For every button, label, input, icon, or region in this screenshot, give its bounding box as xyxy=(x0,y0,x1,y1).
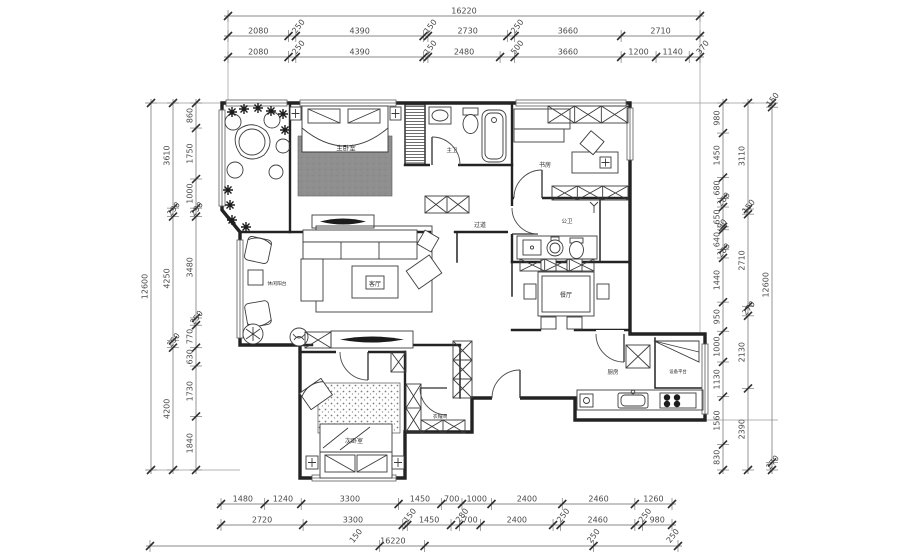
window xyxy=(219,110,225,206)
armchair-icon xyxy=(406,255,442,289)
room-label-master-bedroom: 主卧室 xyxy=(336,143,356,152)
svg-text:2710: 2710 xyxy=(650,27,670,36)
svg-text:2400: 2400 xyxy=(507,516,527,525)
svg-text:3300: 3300 xyxy=(340,495,360,504)
svg-text:16220: 16220 xyxy=(451,7,476,16)
svg-text:1450: 1450 xyxy=(419,516,439,525)
svg-text:3610: 3610 xyxy=(163,145,172,165)
plant-icon xyxy=(227,215,237,225)
plant-icon xyxy=(227,107,237,117)
side-table-icon xyxy=(248,270,263,285)
svg-text:680: 680 xyxy=(713,180,722,195)
svg-text:860: 860 xyxy=(186,108,195,123)
svg-text:2480: 2480 xyxy=(454,48,474,57)
svg-text:980: 980 xyxy=(650,516,665,525)
door-arc xyxy=(420,388,447,415)
kitchen-sink-icon xyxy=(618,390,648,408)
svg-text:1260: 1260 xyxy=(643,495,663,504)
svg-text:1480: 1480 xyxy=(233,495,253,504)
plant-icon xyxy=(600,157,611,168)
x-hatch-box xyxy=(425,196,469,213)
svg-text:2390: 2390 xyxy=(738,419,747,439)
svg-text:1730: 1730 xyxy=(186,381,195,401)
room-label-public-bath: 公卫 xyxy=(561,218,573,225)
master-bath: 主卫 xyxy=(429,107,506,162)
toilet-icon xyxy=(570,238,584,259)
floorplan-page: 主卧室 主卫 书房 过道 xyxy=(0,0,920,560)
tv-cabinet-icon xyxy=(331,331,413,348)
svg-text:700: 700 xyxy=(462,516,477,525)
room-label-study: 书房 xyxy=(539,161,551,169)
window xyxy=(516,100,626,106)
nightstand-icon xyxy=(392,456,404,469)
dimension-chain-left_inner: 86017501000290348025077063017301840 xyxy=(186,99,205,474)
floor-plan-canvas: 主卧室 主卫 书房 过道 xyxy=(0,0,920,560)
chair-icon xyxy=(541,317,556,329)
chair-icon xyxy=(524,284,536,299)
balcony-chair-icon xyxy=(244,300,272,328)
square-sink-icon xyxy=(523,240,541,255)
svg-text:150: 150 xyxy=(348,527,365,545)
room-label-living: 客厅 xyxy=(369,280,381,288)
svg-text:4390: 4390 xyxy=(349,48,369,57)
svg-text:16220: 16220 xyxy=(380,537,405,546)
plant-icon xyxy=(241,222,251,232)
room-label-leisure-balcony: 休闲阳台 xyxy=(267,280,286,287)
svg-text:2710: 2710 xyxy=(738,250,747,270)
room-label-kitchen: 厨房 xyxy=(607,368,619,376)
svg-text:1130: 1130 xyxy=(713,369,722,389)
dimension-chain-right_outer: 15012600270 xyxy=(762,91,781,474)
svg-text:640: 640 xyxy=(713,232,722,247)
round-table-icon xyxy=(239,129,265,155)
plant-icon xyxy=(253,103,263,113)
plant-icon xyxy=(278,109,288,119)
stove-icon xyxy=(660,393,696,408)
wardrobe-icon xyxy=(405,105,425,163)
svg-text:1140: 1140 xyxy=(662,48,682,57)
svg-text:1200: 1200 xyxy=(628,48,648,57)
plant-icon xyxy=(223,185,233,195)
dimension-chain-bottom_row3: 15016220250250 xyxy=(146,527,682,552)
door-arc xyxy=(514,170,542,198)
svg-text:12600: 12600 xyxy=(141,274,150,299)
dimension-chain-bottom_row2: 27203300150145028070024002502460250980 xyxy=(217,507,676,531)
svg-text:1450: 1450 xyxy=(713,145,722,165)
plant-icon xyxy=(239,104,249,114)
svg-text:2080: 2080 xyxy=(248,48,268,57)
door-arc xyxy=(492,370,520,398)
x-hatch-box xyxy=(626,345,650,368)
pouf-chair-icon xyxy=(264,112,280,128)
corner-shelf-icon xyxy=(654,341,699,362)
svg-text:3480: 3480 xyxy=(186,257,195,277)
stool-icon xyxy=(417,230,439,252)
leisure-balcony: 休闲阳台 xyxy=(243,236,287,344)
window xyxy=(300,100,396,106)
svg-text:770: 770 xyxy=(186,329,195,344)
second-bedroom: 次卧室 xyxy=(300,378,404,478)
room-label-second-bedroom: 次卧室 xyxy=(345,437,363,445)
svg-text:2130: 2130 xyxy=(738,342,747,362)
svg-text:1560: 1560 xyxy=(713,410,722,430)
kitchen: 厨房 设备平台 xyxy=(577,341,703,410)
pouf-chair-icon xyxy=(225,114,241,130)
svg-text:2460: 2460 xyxy=(588,516,608,525)
svg-text:1750: 1750 xyxy=(186,143,195,163)
appliance-icon xyxy=(580,394,593,407)
windows xyxy=(219,100,708,481)
svg-text:4200: 4200 xyxy=(163,399,172,419)
pouf-chair-icon xyxy=(227,162,243,178)
dimension-chain-left_total: 12600 xyxy=(141,99,158,474)
public-bath: 公卫 xyxy=(517,202,598,259)
study: 书房 xyxy=(514,109,618,173)
nightstand-icon xyxy=(390,107,401,120)
cabinet-icon xyxy=(514,109,570,129)
svg-text:250: 250 xyxy=(665,527,682,545)
dimension-chain-right_inner: 9801450680280650906402801440950100011301… xyxy=(713,99,732,474)
x-hatch-box xyxy=(406,384,421,432)
room-label-dining: 餐厅 xyxy=(560,291,572,299)
svg-text:2400: 2400 xyxy=(517,495,537,504)
svg-text:830: 830 xyxy=(713,450,722,465)
balcony-chair-icon xyxy=(244,236,272,264)
plant-pot-icon xyxy=(243,324,263,344)
svg-text:2080: 2080 xyxy=(248,27,268,36)
room-label-equipment-platform: 设备平台 xyxy=(669,368,687,375)
svg-text:3300: 3300 xyxy=(343,516,363,525)
svg-text:4390: 4390 xyxy=(349,27,369,36)
chair-icon xyxy=(597,284,609,299)
svg-text:1000: 1000 xyxy=(467,495,487,504)
svg-text:3660: 3660 xyxy=(558,27,578,36)
room-label-hallway: 过道 xyxy=(474,221,486,229)
master-bedroom: 主卧室 xyxy=(290,106,401,228)
chair-icon xyxy=(580,131,604,155)
svg-text:12600: 12600 xyxy=(762,272,771,297)
floor-drain-icon xyxy=(590,202,598,213)
dimension-chain-left_middle: 361029042502504200 xyxy=(163,99,182,474)
toilet-icon xyxy=(463,108,478,134)
x-hatch-box xyxy=(305,332,331,348)
door-arc xyxy=(596,334,624,362)
x-hatch-box xyxy=(391,352,406,372)
svg-text:1000: 1000 xyxy=(186,183,195,203)
svg-text:1240: 1240 xyxy=(273,495,293,504)
x-hatch-box xyxy=(453,341,472,398)
svg-text:630: 630 xyxy=(186,349,195,364)
bed-icon xyxy=(320,424,392,478)
svg-text:1000: 1000 xyxy=(713,336,722,356)
bathtub-icon xyxy=(482,110,506,162)
garden-balcony xyxy=(225,112,290,179)
dimension-chain-top_row2: 208025043901502480500366012001140370 xyxy=(224,39,711,63)
svg-text:950: 950 xyxy=(713,309,722,324)
svg-text:3660: 3660 xyxy=(558,48,578,57)
plant-icon xyxy=(266,106,276,116)
svg-text:1840: 1840 xyxy=(186,433,195,453)
dimension-chain-right_middle: 3110150271027021302390 xyxy=(738,99,757,474)
svg-text:1450: 1450 xyxy=(410,495,430,504)
svg-text:250: 250 xyxy=(585,527,602,545)
room-label-master-bath: 主卫 xyxy=(446,146,458,154)
cabinet-icon xyxy=(514,129,564,142)
nightstand-icon xyxy=(290,107,301,120)
window xyxy=(237,240,243,338)
plant-icon xyxy=(225,200,235,210)
nightstand-icon xyxy=(306,456,318,469)
svg-text:2720: 2720 xyxy=(252,516,272,525)
door-arc xyxy=(340,352,368,380)
svg-text:2460: 2460 xyxy=(588,495,608,504)
svg-text:2730: 2730 xyxy=(457,27,477,36)
pouf-chair-icon xyxy=(269,165,283,179)
svg-text:4250: 4250 xyxy=(163,268,172,288)
dimension-chain-top_row1: 20802504390150273025036602710 xyxy=(224,18,704,42)
svg-text:1440: 1440 xyxy=(713,270,722,290)
window xyxy=(226,100,287,106)
svg-text:3110: 3110 xyxy=(738,146,747,166)
plant-icon xyxy=(280,125,290,135)
svg-text:980: 980 xyxy=(713,110,722,125)
dimension-chain-top_total: 16220 xyxy=(224,7,704,23)
svg-text:700: 700 xyxy=(444,495,459,504)
chair-icon xyxy=(567,317,582,329)
washbasin-icon xyxy=(429,107,451,124)
dimension-chain-bottom_row1: 14801240330014507001000240024601260 xyxy=(217,495,676,511)
pouf-chair-icon xyxy=(276,139,290,153)
living-room: 客厅 xyxy=(290,226,442,348)
